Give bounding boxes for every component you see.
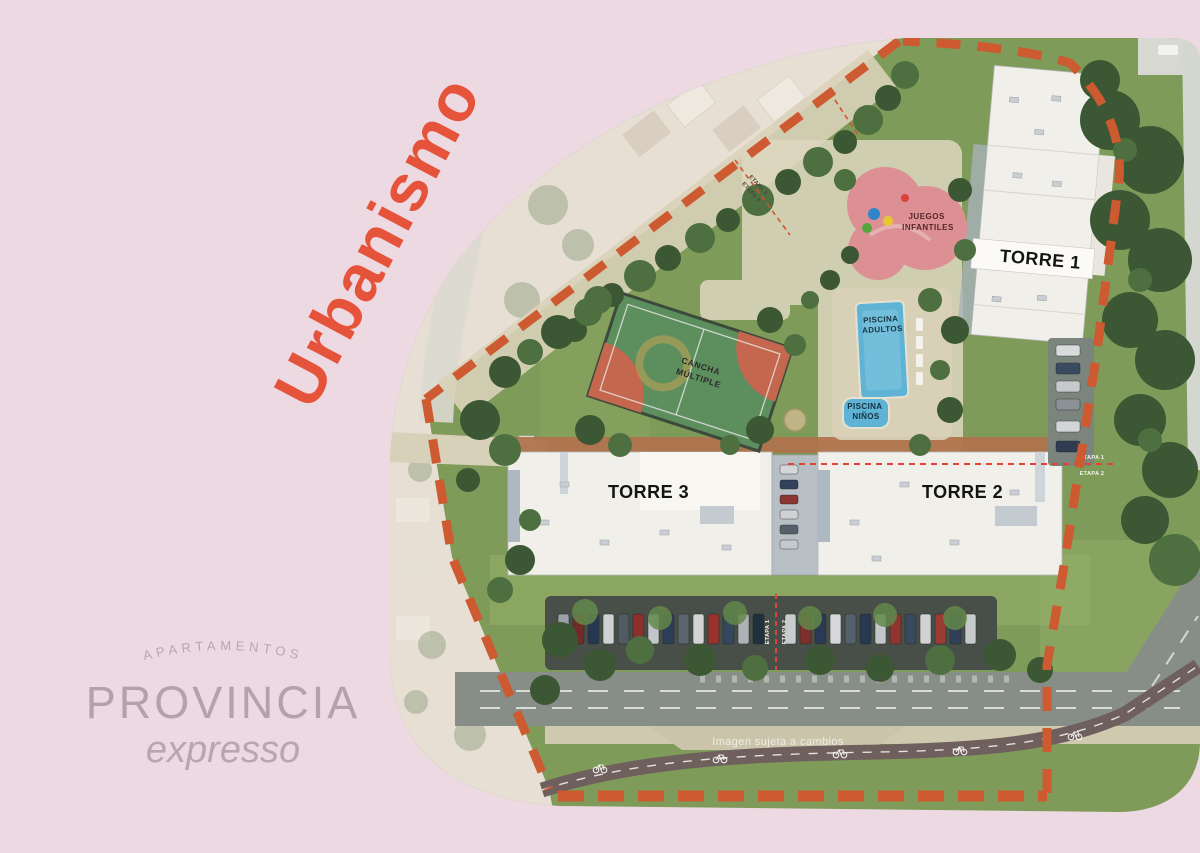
tower-3-roof: TORRE 3	[508, 452, 772, 575]
brand-logo: APARTAMENTOS PROVINCIA expresso	[58, 610, 388, 785]
kids-pool-label-line1: PISCINA	[847, 402, 882, 411]
adult-pool-label-line1: PISCINA	[863, 314, 898, 325]
kids-pool-label-line2: NIÑOS	[852, 412, 880, 421]
central-core	[772, 455, 818, 575]
stage-marker-parking-etapa2: ETAPA 2	[782, 620, 788, 645]
logo-tagline: APARTAMENTOS	[141, 638, 304, 663]
brochure-page: Imagen sujeta a cambios	[0, 0, 1200, 853]
logo-script: expresso	[146, 729, 300, 771]
stage-marker-right-etapa2: ETAPA 2	[1080, 471, 1105, 477]
tower-2-label: TORRE 2	[922, 482, 1003, 502]
svg-text:PISCINA NIÑOS: PISCINA NIÑOS	[847, 402, 885, 421]
tower1-parking	[1048, 338, 1094, 466]
playground-label-line2: INFANTILES	[902, 223, 954, 232]
stage-marker-parking-etapa1: ETAPA 1	[765, 620, 771, 645]
disclaimer-text: Imagen sujeta a cambios	[712, 736, 844, 748]
svg-text:PISCINA ADULTOS: PISCINA ADULTOS	[861, 314, 903, 335]
playground-label-line1: JUEGOS	[908, 212, 945, 221]
tower-2-roof: TORRE 2	[818, 452, 1062, 575]
tower-3-label: TORRE 3	[608, 482, 689, 502]
logo-name: PROVINCIA	[86, 677, 361, 728]
